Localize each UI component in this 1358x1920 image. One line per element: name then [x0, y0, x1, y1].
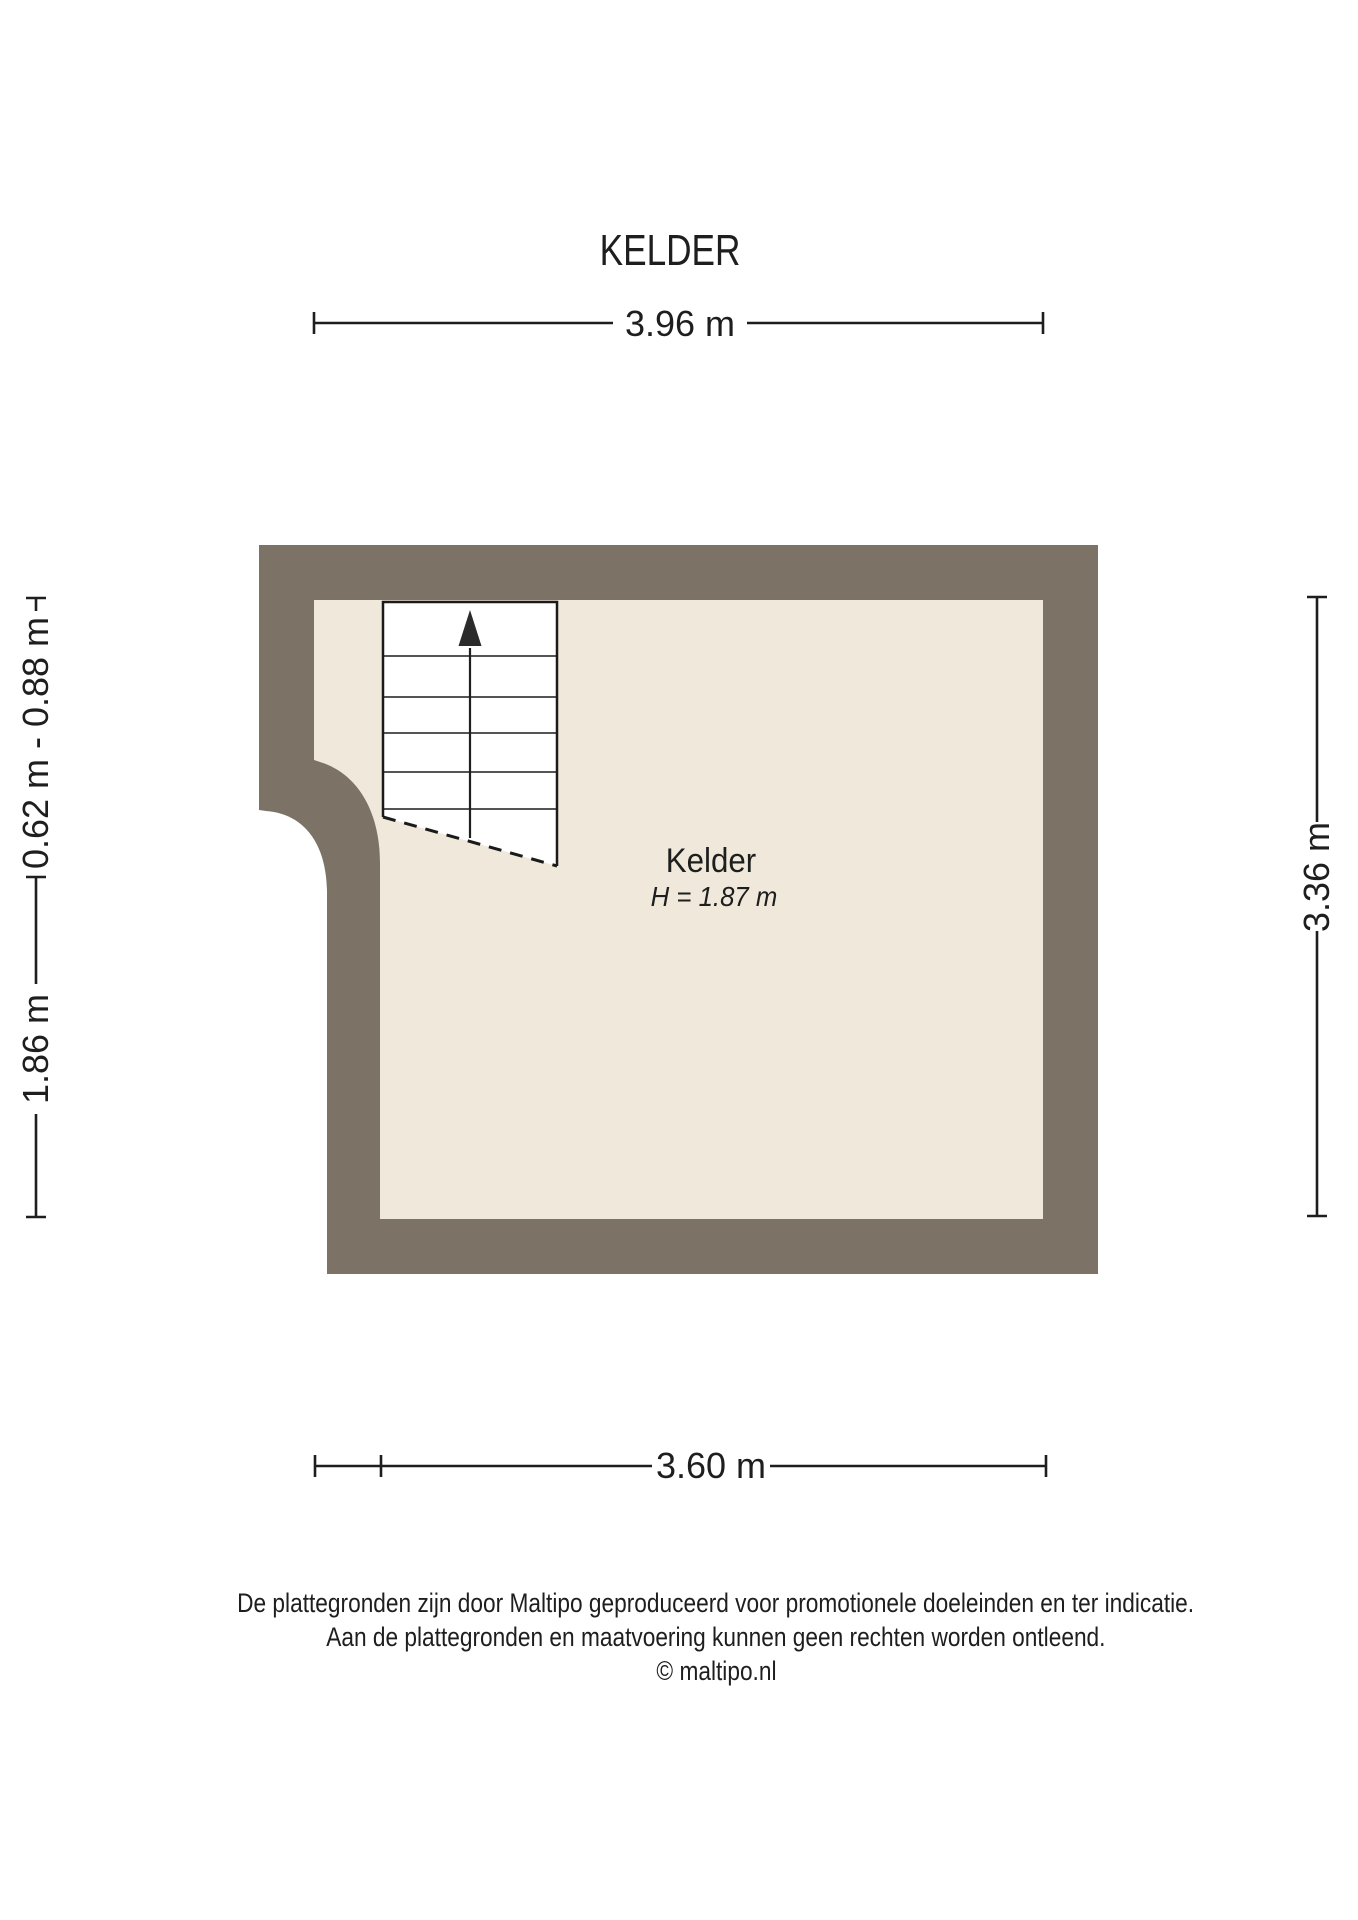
footer-copyright: © maltipo.nl: [74, 1654, 1358, 1688]
top-dimension-label: 3.96 m: [625, 306, 735, 342]
floorplan-page: KELDER: [0, 0, 1358, 1920]
footer-line-2: Aan de plattegronden en maatvoering kunn…: [74, 1620, 1358, 1654]
left-upper-dimension-label: 0.62 m - 0.88 m: [18, 617, 54, 869]
right-dimension-label: 3.36 m: [1299, 822, 1335, 932]
bottom-dimension-label: 3.60 m: [656, 1448, 766, 1484]
room-height-label: H = 1.87 m: [651, 883, 778, 911]
footer-line-1: De plattegronden zijn door Maltipo gepro…: [74, 1586, 1358, 1620]
left-lower-dimension-label: 1.86 m: [18, 994, 54, 1104]
room-name-label: Kelder: [666, 844, 756, 878]
footer-disclaimer: De plattegronden zijn door Maltipo gepro…: [74, 1586, 1358, 1688]
